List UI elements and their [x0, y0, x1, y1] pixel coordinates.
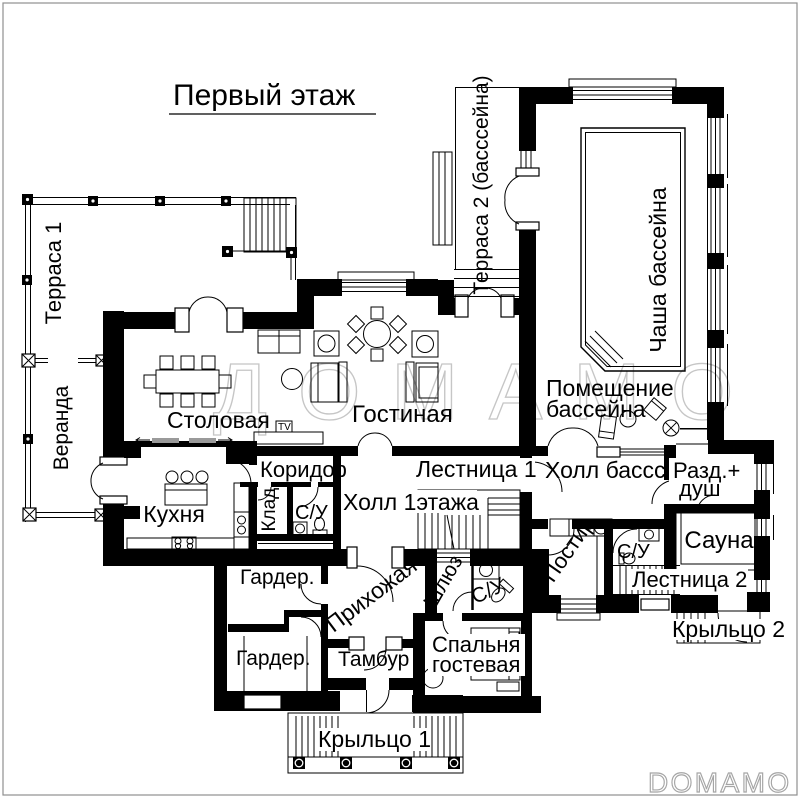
svg-text:TV: TV — [278, 422, 291, 433]
svg-text:Лестница 1: Лестница 1 — [416, 456, 537, 482]
svg-text:Гостиная: Гостиная — [352, 401, 453, 428]
svg-text:Терраса 2 (басссейна): Терраса 2 (басссейна) — [470, 75, 493, 294]
svg-text:Крыльцо 2: Крыльцо 2 — [672, 616, 785, 642]
svg-text:Сауна: Сауна — [684, 527, 754, 554]
svg-text:DOMAMO: DOMAMO — [648, 767, 792, 798]
svg-text:Чаша бассейна: Чаша бассейна — [645, 187, 671, 353]
svg-text:Клад.: Клад. — [259, 482, 280, 531]
svg-text:душ: душ — [679, 476, 721, 501]
svg-text:Крыльцо 1: Крыльцо 1 — [318, 726, 431, 752]
svg-text:Веранда: Веранда — [50, 385, 73, 470]
svg-text:Первый этаж: Первый этаж — [173, 79, 355, 112]
svg-text:Гардер.: Гардер. — [240, 566, 315, 589]
svg-text:С/У: С/У — [617, 541, 650, 563]
svg-text:Кухня: Кухня — [143, 501, 205, 527]
svg-text:ДОМАМО: ДОМАМО — [213, 347, 764, 436]
svg-text:гостевая: гостевая — [432, 652, 520, 677]
svg-text:Гардер.: Гардер. — [236, 647, 311, 670]
svg-text:Тамбур: Тамбур — [338, 648, 409, 671]
svg-text:Холл 1этажа: Холл 1этажа — [343, 489, 479, 515]
svg-text:Терраса 1: Терраса 1 — [41, 222, 66, 325]
svg-text:бассейна: бассейна — [546, 396, 646, 422]
svg-text:Лестница 2: Лестница 2 — [632, 567, 747, 592]
svg-text:Столовая: Столовая — [167, 407, 270, 433]
svg-text:С/У: С/У — [295, 502, 328, 524]
